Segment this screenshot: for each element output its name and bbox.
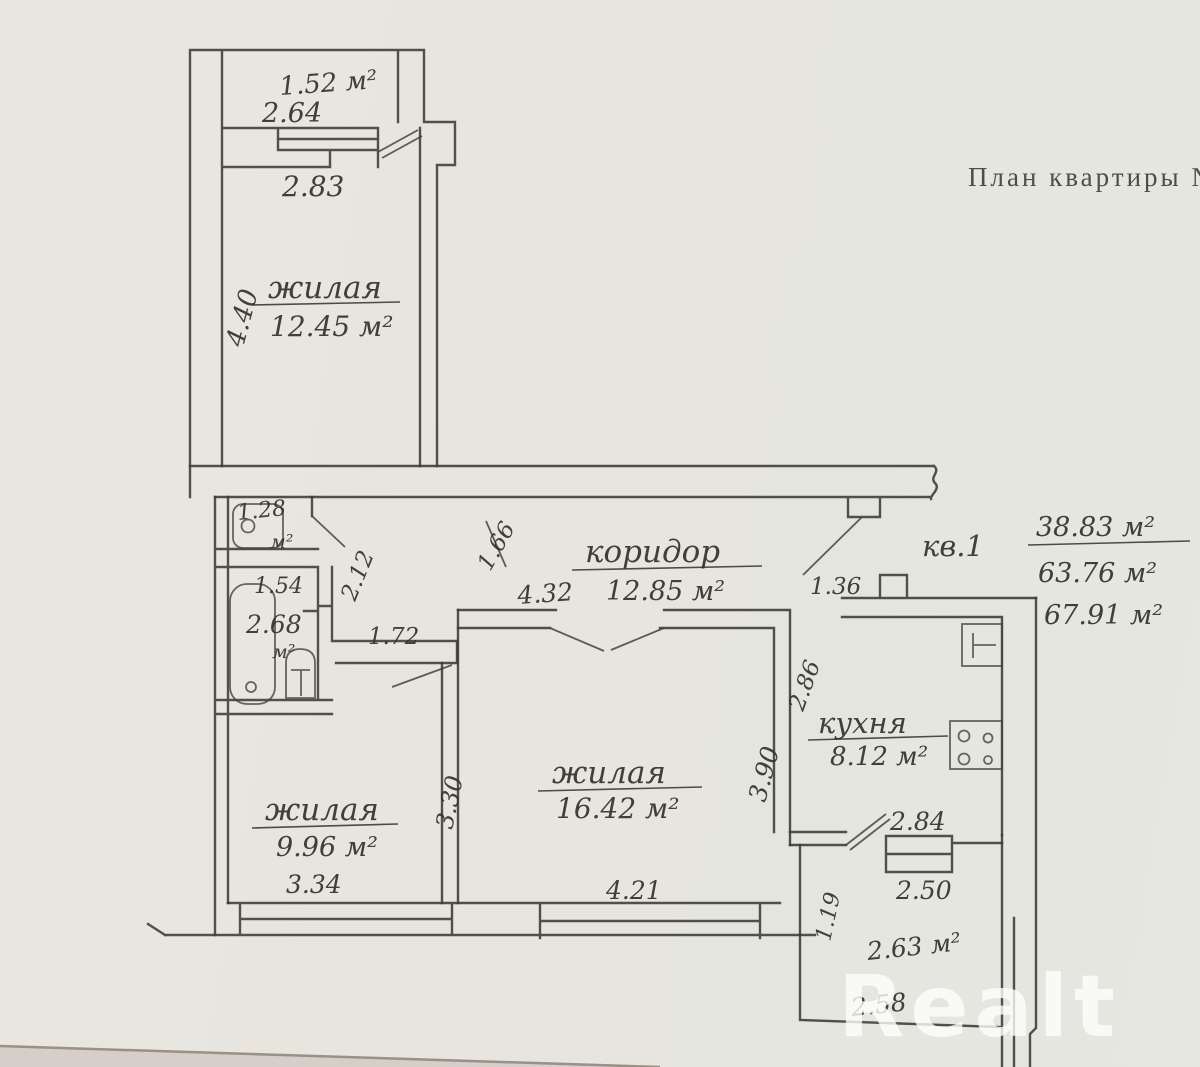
apartment-usable-area: 63.76 м² bbox=[1038, 558, 1157, 589]
room2-depth-dim: 3.90 bbox=[743, 743, 785, 804]
room-divider-walls bbox=[442, 610, 458, 903]
entrance-door-dim: 1.36 bbox=[810, 574, 861, 600]
room1-area-label: 12.45 м² bbox=[270, 310, 394, 343]
bathroom-area-label: 2.68 bbox=[245, 610, 302, 639]
corridor-name-label: коридор bbox=[585, 534, 720, 570]
kitchen-area-label: 8.12 м² bbox=[830, 742, 928, 772]
corridor-side-dim: 1.66 bbox=[473, 518, 521, 575]
apartment-total-area: 67.91 м² bbox=[1044, 600, 1163, 631]
bathroom-width-dim: 1.54 bbox=[254, 574, 303, 599]
balcony-area-label: 1.52 м² bbox=[278, 65, 378, 102]
kitchen-balcony-door-swing-lines bbox=[846, 814, 890, 850]
corridor-area-label: 12.85 м² bbox=[606, 576, 725, 607]
kitchen-sink-icon bbox=[962, 624, 1002, 666]
room2-wall-dim: 3.30 bbox=[430, 773, 468, 831]
wc-area-label: 1.28 bbox=[236, 496, 287, 526]
room3-name-label: жилая bbox=[265, 792, 379, 828]
room2-name-label: жилая bbox=[552, 755, 666, 791]
balcony-door-swing-lines bbox=[378, 130, 422, 158]
page-title: План квартиры № bbox=[968, 162, 1200, 192]
apartment-living-area: 38.83 м² bbox=[1036, 512, 1155, 543]
room2-width-dim: 4.21 bbox=[605, 876, 662, 905]
room3-width-dim: 3.34 bbox=[286, 870, 342, 899]
bathroom-door-dim: 1.72 bbox=[368, 624, 419, 650]
wc-unit-label: м² bbox=[270, 531, 293, 553]
bathroom-niche-dim: 2.12 bbox=[336, 547, 380, 605]
room2-area-label: 16.42 м² bbox=[556, 792, 680, 825]
room1-width-dim: 2.83 bbox=[281, 170, 344, 203]
room1-name-label: жилая bbox=[268, 270, 382, 306]
apartment-number-label: кв.1 bbox=[922, 529, 984, 563]
entrance-door-swing-line bbox=[803, 517, 862, 575]
bathtub-icon bbox=[230, 584, 275, 704]
living-room-door-swing-lines bbox=[550, 628, 664, 651]
room3-area-label: 9.96 м² bbox=[276, 832, 378, 863]
kitchen-name-label: кухня bbox=[818, 706, 907, 740]
loggia-top-dim: 2.84 bbox=[889, 807, 946, 836]
bathroom-unit-label: м² bbox=[272, 641, 295, 663]
corridor-walls bbox=[190, 466, 937, 517]
room1-depth-dim: 4.40 bbox=[221, 286, 265, 351]
wc-door-swing-line bbox=[312, 516, 345, 547]
corridor-top-dim: 4.32 bbox=[515, 577, 574, 610]
balcony-window-dim: 2.64 bbox=[261, 98, 322, 129]
stove-icon bbox=[950, 721, 1002, 769]
realt-watermark: Realt bbox=[838, 957, 1121, 1057]
bottom-exterior-wall bbox=[148, 903, 815, 938]
loggia-side-dim: 1.19 bbox=[811, 890, 846, 943]
loggia-width-dim: 2.50 bbox=[895, 876, 952, 905]
floor-plan-scan: 1.52 м² 2.64 2.83 жилая 12.45 м² 4.40 ко… bbox=[0, 0, 1200, 1067]
